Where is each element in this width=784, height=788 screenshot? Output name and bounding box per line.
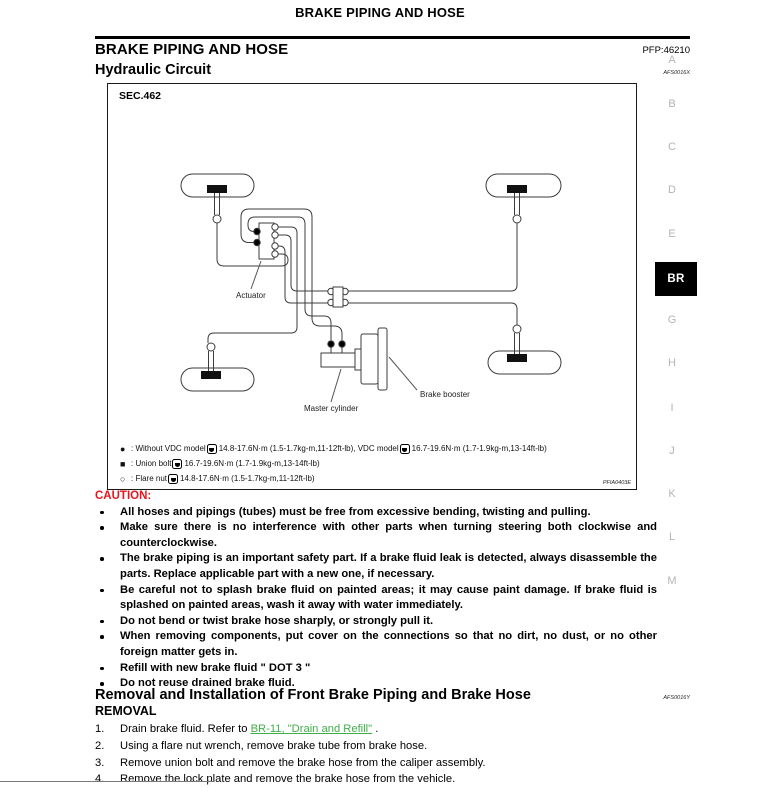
step-item: 1. Drain brake fluid. Refer to BR-11, "D…: [95, 721, 690, 738]
bullet-icon: [95, 614, 120, 630]
figure-ref-code: AFS0016Y: [663, 695, 690, 703]
legend-row-flare-nut: ○ : Flare nut 14.8-17.6N·m (1.5-1.7kg-m,…: [120, 471, 625, 486]
subsection-heading-row: Hydraulic Circuit AFS0016X: [95, 62, 690, 78]
wheel-front-left: [181, 174, 254, 223]
filled-circle-symbol: ●: [120, 444, 131, 454]
union-bolt-mc-2: [339, 341, 345, 347]
filled-square-symbol: ■: [120, 459, 131, 469]
tab-letter-l: L: [660, 531, 684, 543]
removal-section-title: Removal and Installation of Front Brake …: [95, 687, 531, 703]
legend-row-union-bolt-vdc: ● : Without VDC model 14.8-17.6N·m (1.5-…: [120, 441, 625, 456]
caution-item: Refill with new brake fluid " DOT 3 ": [95, 661, 657, 677]
tab-letter-g: G: [660, 314, 684, 326]
removal-section: Removal and Installation of Front Brake …: [95, 687, 690, 788]
torque-legend: ● : Without VDC model 14.8-17.6N·m (1.5-…: [120, 441, 625, 486]
pipe-connector: [328, 287, 348, 307]
bullet-icon: [95, 629, 120, 660]
hydraulic-circuit-figure: Actuator Master cylinder Brake booster S…: [107, 83, 637, 490]
bullet-icon: [95, 661, 120, 677]
tab-letter-a: A: [660, 54, 684, 66]
wheel-front-right: [486, 174, 561, 223]
tab-letter-k: K: [660, 488, 684, 500]
br11-drain-refill-link[interactable]: BR-11, "Drain and Refill": [251, 723, 373, 735]
pipe-rear-right: [278, 246, 517, 325]
actuator-leader: [251, 261, 261, 289]
master-cylinder: [321, 341, 361, 370]
brake-booster: [361, 328, 387, 390]
caution-item: Be careful not to splash brake fluid on …: [95, 583, 657, 614]
tab-letter-c: C: [660, 141, 684, 153]
caution-item: Do not bend or twist brake hose sharply,…: [95, 614, 657, 630]
flare-nut-front-right: [513, 215, 521, 223]
step-item: 3. Remove union bolt and remove the brak…: [95, 755, 690, 772]
step-number: 2.: [95, 738, 120, 755]
removal-steps: 1. Drain brake fluid. Refer to BR-11, "D…: [95, 721, 690, 788]
actuator-unit: [254, 223, 278, 259]
flare-nut-rear-left: [207, 343, 215, 351]
torque-wrench-icon: [168, 474, 178, 484]
figure-ref-code: AFS0016X: [663, 70, 690, 78]
caution-item: Make sure there is no interference with …: [95, 520, 657, 551]
step-number: 3.: [95, 755, 120, 772]
tab-letter-b: B: [660, 98, 684, 110]
page-bottom-rule: [0, 781, 213, 782]
legend-text: 16.7-19.6N·m (1.7-1.9kg-m,13-14ft-lb): [412, 444, 547, 453]
step-item: 2. Using a flare nut wrench, remove brak…: [95, 738, 690, 755]
step-item: 4. Remove the lock plate and remove the …: [95, 771, 690, 788]
master-cylinder-label: Master cylinder: [304, 404, 359, 413]
union-bolt-mc-1: [328, 341, 334, 347]
step-text: Remove the lock plate and remove the bra…: [120, 771, 455, 788]
removal-heading-row: Removal and Installation of Front Brake …: [95, 687, 690, 703]
wheel-rear-right: [488, 325, 561, 374]
bullet-icon: [95, 520, 120, 551]
figure-id: PFIA0403E: [603, 480, 631, 486]
caution-item: All hoses and pipings (tubes) must be fr…: [95, 505, 657, 521]
bullet-icon: [95, 583, 120, 614]
tab-letter-d: D: [660, 184, 684, 196]
tab-br-active: BR: [655, 262, 697, 296]
tab-letter-h: H: [660, 357, 684, 369]
wheel-rear-left: [181, 343, 254, 391]
legend-text: 14.8-17.6N·m (1.5-1.7kg-m,11-12ft-lb): [180, 474, 315, 483]
torque-wrench-icon: [172, 459, 182, 469]
sec-number: SEC.462: [119, 90, 161, 102]
union-bolt-actuator-2: [254, 239, 260, 245]
brake-booster-label: Brake booster: [420, 390, 470, 399]
step-number: 1.: [95, 721, 120, 738]
page-running-title: BRAKE PIPING AND HOSE: [60, 5, 700, 20]
legend-text: : Union bolt: [131, 459, 171, 468]
legend-text: 14.8-17.6N·m (1.5-1.7kg-m,11-12ft-lb), V…: [219, 444, 399, 453]
master-cylinder-leader: [331, 369, 341, 402]
torque-wrench-icon: [207, 444, 217, 454]
section-title: BRAKE PIPING AND HOSE: [95, 41, 288, 58]
legend-row-union-bolt: ■ : Union bolt 16.7-19.6N·m (1.7-1.9kg-m…: [120, 456, 625, 471]
legend-text: 16.7-19.6N·m (1.7-1.9kg-m,13-14ft-lb): [184, 459, 319, 468]
step-text: Remove union bolt and remove the brake h…: [120, 755, 485, 772]
torque-wrench-icon: [400, 444, 410, 454]
caution-title: CAUTION:: [95, 489, 657, 505]
open-circle-symbol: ○: [120, 474, 131, 484]
flare-nut-rear-right: [513, 325, 521, 333]
removal-subtitle: REMOVAL: [95, 704, 690, 718]
bullet-icon: [95, 505, 120, 521]
actuator-label: Actuator: [236, 291, 266, 300]
legend-text: : Without VDC model: [131, 444, 206, 453]
legend-text: : Flare nut: [131, 474, 167, 483]
bullet-icon: [95, 551, 120, 582]
tab-letter-e: E: [660, 228, 684, 240]
hydraulic-circuit-title: Hydraulic Circuit: [95, 62, 211, 78]
step-text: Drain brake fluid. Refer to BR-11, "Drai…: [120, 721, 378, 738]
section-heading-row: BRAKE PIPING AND HOSE PFP:46210: [95, 41, 690, 58]
step-text: Using a flare nut wrench, remove brake t…: [120, 738, 427, 755]
brake-booster-leader: [389, 357, 417, 390]
tab-letter-i: I: [660, 402, 684, 414]
flare-nut-front-left: [213, 215, 221, 223]
hydraulic-circuit-diagram: Actuator Master cylinder Brake booster: [108, 84, 636, 489]
caution-item: The brake piping is an important safety …: [95, 551, 657, 582]
pipe-front-right: [278, 223, 517, 291]
tab-letter-j: J: [660, 445, 684, 457]
caution-section: CAUTION: All hoses and pipings (tubes) m…: [95, 489, 657, 692]
caution-item: When removing components, put cover on t…: [95, 629, 657, 660]
union-bolt-actuator-1: [254, 228, 260, 234]
tab-letter-m: M: [660, 575, 684, 587]
step-number: 4.: [95, 771, 120, 788]
header-rule: [95, 36, 690, 39]
